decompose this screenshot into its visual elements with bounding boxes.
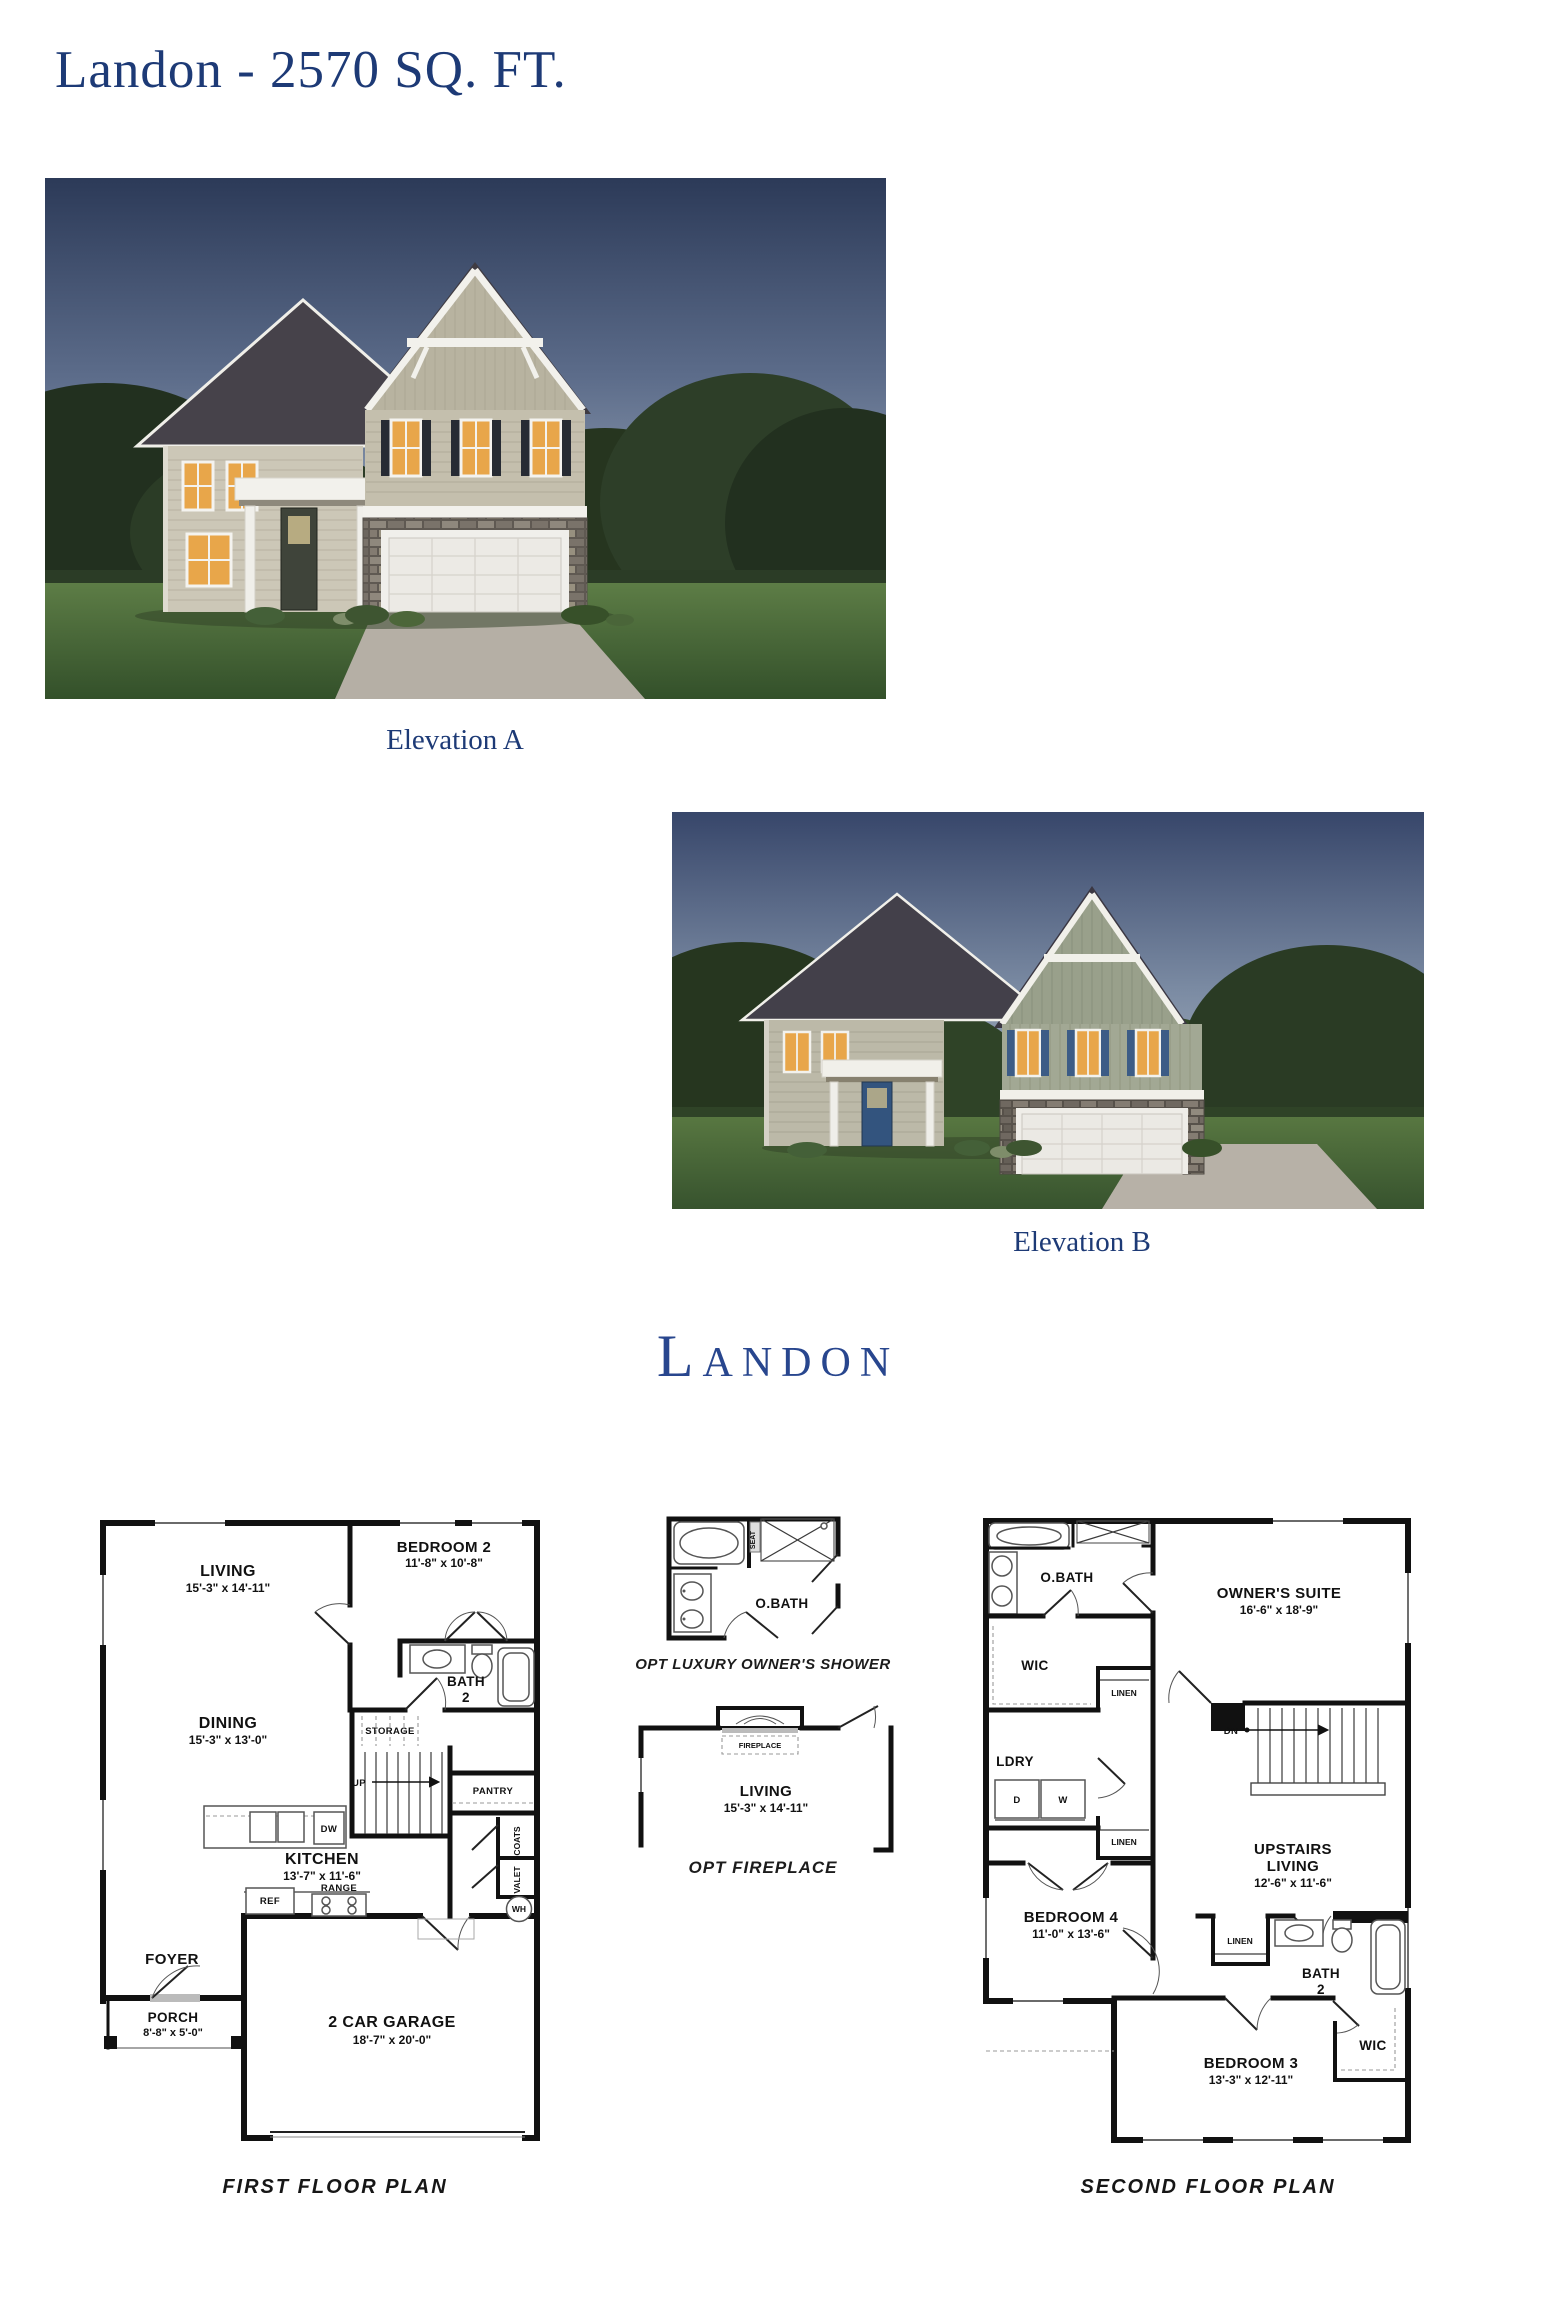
porch-label: PORCH (148, 2010, 199, 2025)
living-label: LIVING (200, 1563, 256, 1580)
elevation-a-caption: Elevation A (255, 724, 655, 757)
interior-walls (350, 1523, 537, 1916)
obath-fixtures (986, 1521, 1151, 1614)
dn-label: DN (1224, 1726, 1239, 1737)
obath-label: O.BATH (1040, 1570, 1093, 1585)
garage-entry-door (418, 1916, 474, 1950)
second-floor-plan: O.BATH OWNER'S SUITE 16'-6" x 18'-9" WIC… (983, 1518, 1413, 2148)
bedroom2-closet-doors (445, 1612, 507, 1641)
ldry-label: LDRY (996, 1754, 1034, 1769)
porch-dims: 8'-8" x 5'-0" (143, 2027, 203, 2039)
valet-label: VALET (512, 1866, 522, 1894)
bath2-label: BATH (1302, 1966, 1340, 1981)
seat-label: SEAT (750, 1530, 757, 1549)
wic-upper-label: WIC (1021, 1658, 1048, 1673)
dining-dims: 15'-3" x 13'-0" (189, 1733, 267, 1747)
bedroom4-dims: 11'-0" x 13'-6" (1032, 1927, 1110, 1941)
bath2-label: BATH (447, 1674, 485, 1689)
bath2-label2: 2 (462, 1690, 470, 1705)
plan-logo: Landon (0, 1322, 1556, 1391)
bedroom2-label: BEDROOM 2 (397, 1539, 491, 1556)
washer-label: W (1058, 1795, 1067, 1806)
dryer-label: D (1013, 1795, 1020, 1806)
first-floor-plan: LIVING 15'-3" x 14'-11" BEDROOM 2 11'-8"… (100, 1520, 546, 2148)
stairs-down (1245, 1708, 1386, 1795)
opt-shower-caption: OPT LUXURY OWNER'S SHOWER (593, 1656, 933, 1673)
coats-label: COATS (512, 1826, 522, 1855)
room-labels: LIVING 15'-3" x 14'-11" BEDROOM 2 11'-8"… (143, 1539, 526, 2047)
bedroom2-door (315, 1604, 350, 1645)
opt-fireplace-caption: OPT FIREPLACE (663, 1858, 863, 1878)
opt-fireplace-plan: FIREPLACE LIVING 15'-3" x 14'-11" (638, 1700, 900, 1864)
opt-shower-plan: SEAT O.BATH (666, 1516, 844, 1646)
second-story-windows (1007, 1030, 1169, 1076)
foyer-label: FOYER (145, 1951, 199, 1968)
owners-suite-dims: 16'-6" x 18'-9" (1240, 1603, 1318, 1617)
door (838, 1706, 878, 1728)
wic-lower-label: WIC (1359, 2038, 1386, 2053)
upstairs-label2: LIVING (1267, 1858, 1319, 1875)
elevation-b-photo (672, 812, 1424, 1209)
second-story-windows (381, 420, 571, 476)
dw-label: DW (321, 1824, 338, 1835)
garage-dims: 18'-7" x 20'-0" (353, 2033, 431, 2047)
range-label: RANGE (321, 1883, 357, 1894)
second-floor-caption: SECOND FLOOR PLAN (1008, 2176, 1408, 2199)
pantry-label: PANTRY (473, 1786, 514, 1797)
page-title: Landon - 2570 SQ. FT. (55, 40, 567, 100)
bath2-room (1275, 1916, 1405, 1994)
upstairs-label: UPSTAIRS (1254, 1841, 1332, 1858)
bedroom3-doors (1225, 1998, 1359, 2033)
vanity (674, 1574, 711, 1632)
bedroom3-label: BEDROOM 3 (1204, 2055, 1298, 2072)
kitchen-dims: 13'-7" x 11'-6" (283, 1869, 361, 1883)
storage-label: STORAGE (365, 1726, 415, 1737)
linen-hall-label: LINEN (1111, 1688, 1137, 1698)
pantry-closets (452, 1803, 535, 1888)
bath2-label2: 2 (1317, 1982, 1325, 1997)
bedroom2-dims: 11'-8" x 10'-8" (405, 1556, 483, 1570)
ref-label: REF (260, 1896, 280, 1907)
brochure-page: Landon - 2570 SQ. FT. (0, 0, 1556, 2304)
owners-suite-label: OWNER'S SUITE (1217, 1585, 1342, 1602)
garage-label: 2 CAR GARAGE (328, 2014, 455, 2031)
fireplace: FIREPLACE (718, 1708, 802, 1754)
kitchen-fixtures (204, 1806, 532, 1922)
garage-door (270, 2132, 525, 2137)
wh-label: WH (512, 1904, 526, 1914)
elevation-b-caption: Elevation B (882, 1226, 1282, 1259)
fireplace-label: FIREPLACE (739, 1741, 782, 1750)
linen-bed4-label: LINEN (1111, 1837, 1137, 1847)
kitchen-label: KITCHEN (285, 1851, 359, 1868)
linen-bath-label: LINEN (1227, 1936, 1253, 1946)
tub (674, 1522, 744, 1564)
up-label: UP (352, 1778, 366, 1789)
dining-label: DINING (199, 1715, 257, 1732)
shower (750, 1519, 834, 1561)
suite-door (1169, 1671, 1211, 1703)
upstairs-dims: 12'-6" x 11'-6" (1254, 1876, 1332, 1890)
living-dims: 15'-3" x 14'-11" (186, 1581, 270, 1595)
obath-label: O.BATH (755, 1596, 808, 1611)
living-dims: 15'-3" x 14'-11" (724, 1801, 808, 1815)
first-floor-caption: FIRST FLOOR PLAN (135, 2176, 535, 2199)
elevation-a-photo (45, 178, 886, 699)
bedroom4-label: BEDROOM 4 (1024, 1909, 1119, 1926)
bedroom3-dims: 13'-3" x 12'-11" (1209, 2073, 1293, 2087)
living-label: LIVING (740, 1783, 792, 1800)
